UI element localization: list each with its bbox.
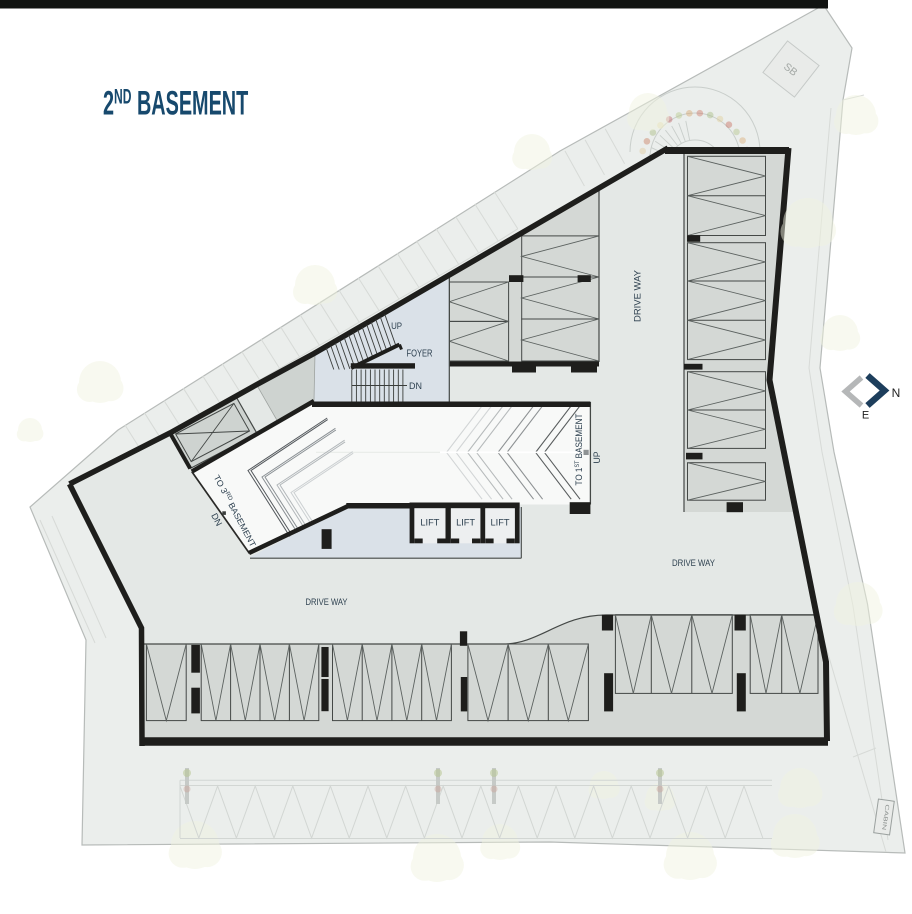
- svg-text:FOYER: FOYER: [407, 348, 433, 360]
- svg-text:TO 1ST BASEMENT: TO 1ST BASEMENT: [574, 413, 584, 485]
- svg-text:DRIVE WAY: DRIVE WAY: [306, 597, 349, 608]
- svg-text:LIFT: LIFT: [491, 518, 511, 528]
- svg-text:UP: UP: [592, 452, 602, 464]
- svg-text:LIFT: LIFT: [456, 518, 476, 528]
- svg-text:DN: DN: [409, 381, 422, 392]
- svg-text:LIFT: LIFT: [420, 518, 440, 528]
- svg-text:E: E: [862, 410, 869, 422]
- svg-text:DRIVE WAY: DRIVE WAY: [633, 269, 644, 322]
- svg-text:DRIVE WAY: DRIVE WAY: [672, 558, 716, 569]
- svg-text:UP: UP: [391, 321, 402, 331]
- svg-text:N: N: [892, 386, 901, 400]
